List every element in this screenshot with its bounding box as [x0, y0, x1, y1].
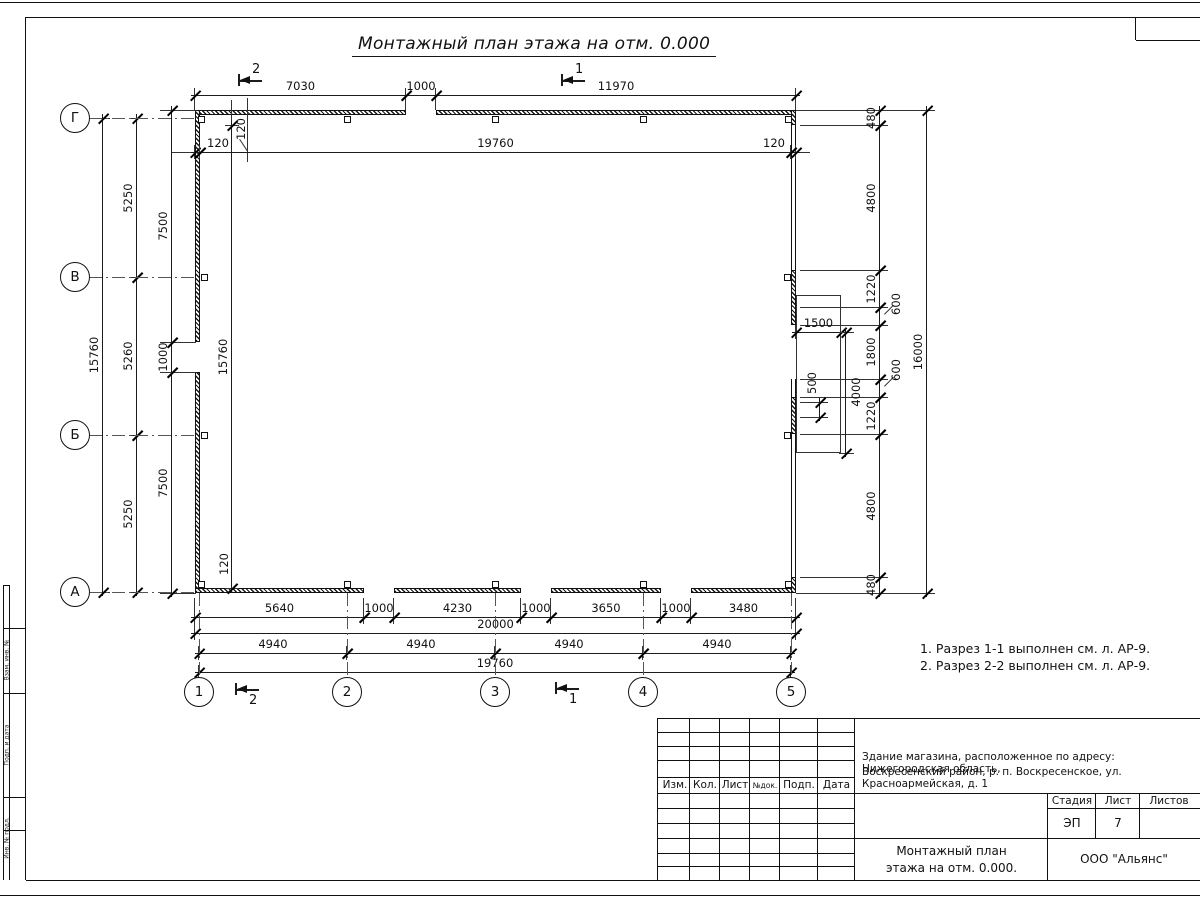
document-title-line2: этажа на отм. 0.000.: [855, 860, 1048, 876]
dimension-line: [343, 653, 499, 654]
dimension-line: [639, 653, 795, 654]
dimension-value: 1000: [364, 601, 393, 615]
dimension-value: 1000: [156, 342, 170, 371]
company-name: ООО "Альянс": [1048, 838, 1200, 880]
axis-bubble: Б: [60, 420, 90, 450]
frame-line: [25, 17, 26, 880]
plan-title: Монтажный план этажа на отм. 0.000: [352, 34, 716, 57]
axis-line: [89, 277, 196, 278]
dimension-value: 7030: [286, 79, 315, 93]
axis-bubble: 2: [332, 677, 362, 707]
dimension-line: [432, 95, 800, 96]
dimension-value: 3480: [729, 601, 758, 615]
dimension-line: [136, 273, 137, 439]
dimension-value: 19760: [477, 136, 514, 150]
title-block-line: [657, 718, 658, 880]
dimension-line: [171, 106, 172, 346]
section-label: 1: [569, 692, 577, 707]
dimension-line: [792, 332, 845, 333]
axis-bubble: А: [60, 577, 90, 607]
title-block-line: [658, 732, 855, 733]
wall-segment-thin: [791, 434, 796, 577]
dimension-value: 500: [805, 372, 819, 394]
sheets-total: [1140, 808, 1198, 838]
axis-bubble: Г: [60, 103, 90, 133]
dimension-line: [191, 617, 368, 618]
column-mark: [492, 116, 499, 123]
frame-line: [26, 17, 1200, 18]
dimension-line: [102, 114, 103, 596]
revision-header-podp: Подп.: [780, 777, 818, 793]
title-block-line: [658, 838, 1200, 839]
dimension-value: 7500: [156, 468, 170, 497]
section-label: 2: [249, 693, 257, 708]
column-mark: [201, 274, 208, 281]
wall-segment-hatched: [691, 588, 796, 593]
title-block-line: [1095, 793, 1096, 838]
stage-label: Стадия: [1048, 793, 1096, 808]
dimension-value: 120: [234, 118, 248, 140]
wall-segment-hatched: [195, 372, 200, 593]
dimension-line: [136, 431, 137, 596]
frame-line: [0, 2, 1200, 3]
side-stamp-label: Взам. инв. №: [4, 640, 11, 681]
dimension-value: 4230: [443, 601, 472, 615]
title-block-line: [658, 853, 855, 854]
side-stamp-label: Инв. № подл.: [4, 817, 11, 858]
revision-header-kol: Кол.: [690, 777, 720, 793]
dimension-value: 1000: [406, 79, 435, 93]
frame-line: [4, 585, 10, 586]
dimension-line: [926, 106, 927, 597]
title-block-line: [689, 718, 690, 880]
drawing-sheet: { "sheet": { "title": "Монтажный план эт…: [0, 0, 1200, 900]
axis-line: [89, 592, 196, 593]
dimension-value: 120: [217, 553, 231, 575]
frame-line: [4, 628, 26, 629]
title-block-line: [779, 718, 780, 880]
section-arrowhead: [557, 684, 567, 692]
dimension-value: 5260: [121, 341, 135, 370]
dimension-value: 4800: [864, 183, 878, 212]
note-section-1: 1. Разрез 1-1 выполнен см. л. АР-9.: [920, 641, 1150, 656]
wall-segment-hatched: [195, 110, 406, 115]
dimension-value: 15760: [216, 338, 230, 375]
title-block-line: [658, 746, 855, 747]
dimension-value: 5250: [121, 499, 135, 528]
dimension-line: [196, 152, 795, 153]
dimension-value: 1000: [661, 601, 690, 615]
title-block-line: [817, 718, 818, 880]
axis-bubble: В: [60, 262, 90, 292]
revision-header-izm: Изм.: [660, 777, 690, 793]
frame-line: [0, 895, 1200, 896]
revision-header-list: Лист: [720, 777, 750, 793]
title-block-line: [658, 808, 855, 809]
title-block-line: [658, 866, 855, 867]
dimension-line: [195, 653, 351, 654]
column-mark: [492, 581, 499, 588]
axis-line: [347, 593, 348, 678]
dimension-line: [171, 368, 172, 597]
section-arrowhead: [563, 76, 573, 84]
dimension-value: 7500: [156, 211, 170, 240]
axis-line: [89, 118, 196, 119]
dimension-value: 1500: [804, 316, 833, 330]
column-mark: [198, 581, 205, 588]
dimension-value: 4940: [702, 637, 731, 651]
title-block-line: [658, 760, 855, 761]
dimension-value: 15760: [87, 337, 101, 374]
axis-line: [199, 593, 200, 678]
wall-segment-hatched: [394, 588, 521, 593]
column-mark: [198, 116, 205, 123]
dimension-value: 3650: [591, 601, 620, 615]
dimension-line: [879, 121, 880, 274]
dimension-line: [879, 430, 880, 581]
dimension-value: 16000: [911, 333, 925, 370]
frame-line: [1135, 17, 1136, 40]
column-mark: [344, 581, 351, 588]
dimension-value: 1220: [864, 401, 878, 430]
dimension-value: 120: [207, 136, 229, 150]
project-description-line2: Воскресенский район, р. п. Воскресенское…: [862, 771, 1200, 785]
dimension-line: [191, 95, 410, 96]
frame-line: [4, 797, 26, 798]
dimension-value: 4940: [406, 637, 435, 651]
title-block-line: [1048, 808, 1200, 809]
side-stamp-label: Подп. и дата: [4, 725, 11, 766]
title-block-line: [854, 718, 855, 880]
dimension-value: 4940: [554, 637, 583, 651]
dimension-line: [845, 328, 846, 457]
revision-header-data: Дата: [818, 777, 855, 793]
title-block-line: [1139, 793, 1140, 838]
wall-segment-hatched: [436, 110, 796, 115]
sheet-canvas: Монтажный план этажа на отм. 0.000 1. Ра…: [0, 0, 1200, 900]
dimension-value: 5250: [121, 183, 135, 212]
section-arrowhead: [237, 685, 247, 693]
title-block-line: [658, 718, 1200, 719]
axis-bubble: 1: [184, 677, 214, 707]
column-mark: [784, 274, 791, 281]
axis-line: [643, 593, 644, 678]
dimension-value: 120: [763, 136, 785, 150]
section-label: 2: [252, 62, 260, 77]
dimension-value: 11970: [598, 79, 635, 93]
dimension-value: 480: [864, 574, 878, 596]
dimension-value: 1220: [864, 274, 878, 303]
dimension-line: [491, 653, 647, 654]
dimension-value: 5640: [265, 601, 294, 615]
dimension-value: 1800: [864, 337, 878, 366]
title-block-line: [749, 718, 750, 880]
title-block-line: [658, 793, 1200, 794]
axis-bubble: 5: [776, 677, 806, 707]
axis-line: [791, 593, 792, 678]
dimension-value: 600: [889, 359, 903, 381]
dimension-line: [879, 321, 880, 383]
column-mark: [640, 116, 647, 123]
title-block-line: [658, 777, 855, 778]
dimension-value: 4800: [864, 491, 878, 520]
wall-segment-hatched: [195, 588, 364, 593]
column-mark: [785, 581, 792, 588]
stage-value: ЭП: [1048, 808, 1096, 838]
document-title-line1: Монтажный план: [855, 843, 1048, 859]
dimension-line: [687, 617, 800, 618]
frame-line: [1136, 40, 1200, 41]
frame-line: [4, 693, 26, 694]
column-mark: [640, 581, 647, 588]
dimension-line: [231, 121, 232, 592]
dimension-line: [136, 114, 137, 281]
axis-line: [89, 435, 196, 436]
frame-line: [26, 880, 1200, 881]
wall-segment-hatched: [551, 588, 661, 593]
dimension-value: 600: [889, 293, 903, 315]
title-block-line: [658, 823, 855, 824]
axis-line: [495, 593, 496, 678]
column-mark: [785, 116, 792, 123]
dimension-value: 1000: [521, 601, 550, 615]
dimension-value: 4000: [849, 377, 863, 406]
section-arrowhead: [240, 76, 250, 84]
sheet-number: 7: [1096, 808, 1140, 838]
title-block-line: [1047, 793, 1048, 880]
section-label: 1: [575, 62, 583, 77]
axis-bubble: 3: [480, 677, 510, 707]
note-section-2: 2. Разрез 2-2 выполнен см. л. АР-9.: [920, 658, 1150, 673]
column-mark: [784, 432, 791, 439]
column-mark: [344, 116, 351, 123]
sheet-label: Лист: [1096, 793, 1140, 808]
axis-bubble: 4: [628, 677, 658, 707]
sheets-label: Листов: [1140, 793, 1198, 808]
title-block-line: [719, 718, 720, 880]
dimension-value: 4940: [258, 637, 287, 651]
revision-header-ndok: №док.: [750, 777, 780, 793]
dimension-line: [547, 617, 665, 618]
column-mark: [201, 432, 208, 439]
